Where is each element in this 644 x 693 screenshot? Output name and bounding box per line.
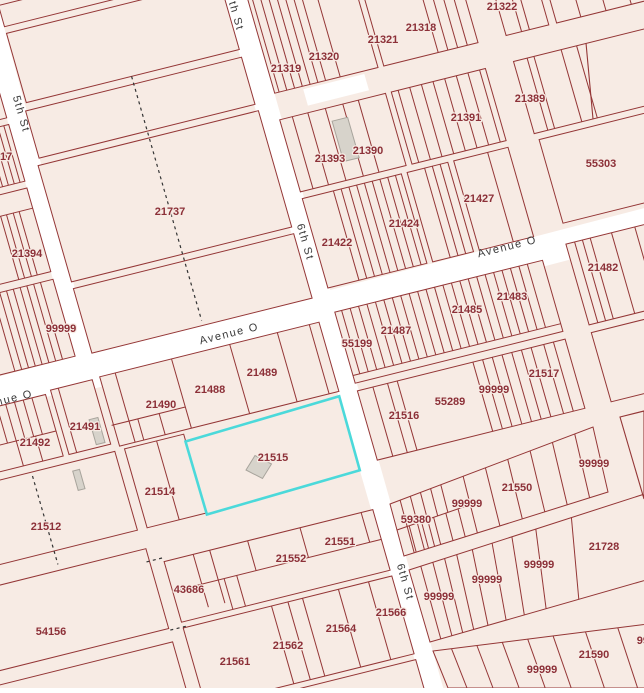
svg-text:99999: 99999	[579, 458, 610, 470]
svg-text:21487: 21487	[381, 325, 412, 337]
svg-text:21728: 21728	[589, 541, 620, 553]
svg-text:21590: 21590	[579, 649, 610, 661]
svg-text:21552: 21552	[276, 553, 307, 565]
svg-text:21320: 21320	[309, 51, 340, 63]
svg-text:54156: 54156	[36, 626, 67, 638]
svg-text:99999: 99999	[472, 574, 503, 586]
svg-text:21482: 21482	[588, 262, 619, 274]
svg-text:99999: 99999	[637, 635, 644, 647]
svg-text:21492: 21492	[20, 437, 51, 449]
svg-text:99999: 99999	[46, 323, 77, 335]
svg-text:21393: 21393	[315, 153, 346, 165]
svg-text:21562: 21562	[273, 640, 304, 652]
svg-text:43686: 43686	[174, 584, 205, 596]
svg-text:21490: 21490	[146, 399, 177, 411]
svg-text:21489: 21489	[247, 367, 278, 379]
svg-text:21512: 21512	[31, 521, 62, 533]
svg-text:21424: 21424	[389, 218, 420, 230]
svg-text:21516: 21516	[389, 410, 420, 422]
svg-text:55303: 55303	[586, 158, 617, 170]
svg-text:21390: 21390	[353, 145, 384, 157]
svg-text:21389: 21389	[515, 93, 546, 105]
svg-text:99999: 99999	[452, 498, 483, 510]
svg-text:55199: 55199	[342, 338, 373, 350]
svg-text:21515: 21515	[258, 452, 289, 464]
svg-text:21321: 21321	[368, 34, 399, 46]
svg-text:21317: 21317	[0, 151, 12, 163]
svg-text:21394: 21394	[12, 248, 43, 260]
svg-text:21491: 21491	[70, 421, 101, 433]
svg-text:21551: 21551	[325, 536, 356, 548]
svg-text:21318: 21318	[406, 22, 437, 34]
svg-text:21422: 21422	[322, 237, 353, 249]
svg-text:21564: 21564	[326, 623, 357, 635]
svg-text:99999: 99999	[424, 591, 455, 603]
svg-text:21483: 21483	[497, 291, 528, 303]
svg-text:21517: 21517	[529, 368, 560, 380]
svg-text:55289: 55289	[435, 396, 466, 408]
svg-text:21550: 21550	[502, 482, 533, 494]
svg-text:21319: 21319	[271, 63, 302, 75]
svg-text:21514: 21514	[145, 486, 176, 498]
svg-text:99999: 99999	[527, 664, 558, 676]
svg-text:21737: 21737	[155, 206, 186, 218]
svg-text:21566: 21566	[376, 607, 407, 619]
svg-text:59380: 59380	[401, 514, 432, 526]
svg-text:21427: 21427	[464, 193, 495, 205]
svg-text:21485: 21485	[452, 304, 483, 316]
svg-text:21561: 21561	[220, 656, 251, 668]
svg-text:21391: 21391	[451, 112, 482, 124]
svg-text:99999: 99999	[524, 559, 555, 571]
svg-text:21322: 21322	[487, 1, 518, 13]
svg-text:99999: 99999	[479, 384, 510, 396]
svg-text:21488: 21488	[195, 384, 226, 396]
